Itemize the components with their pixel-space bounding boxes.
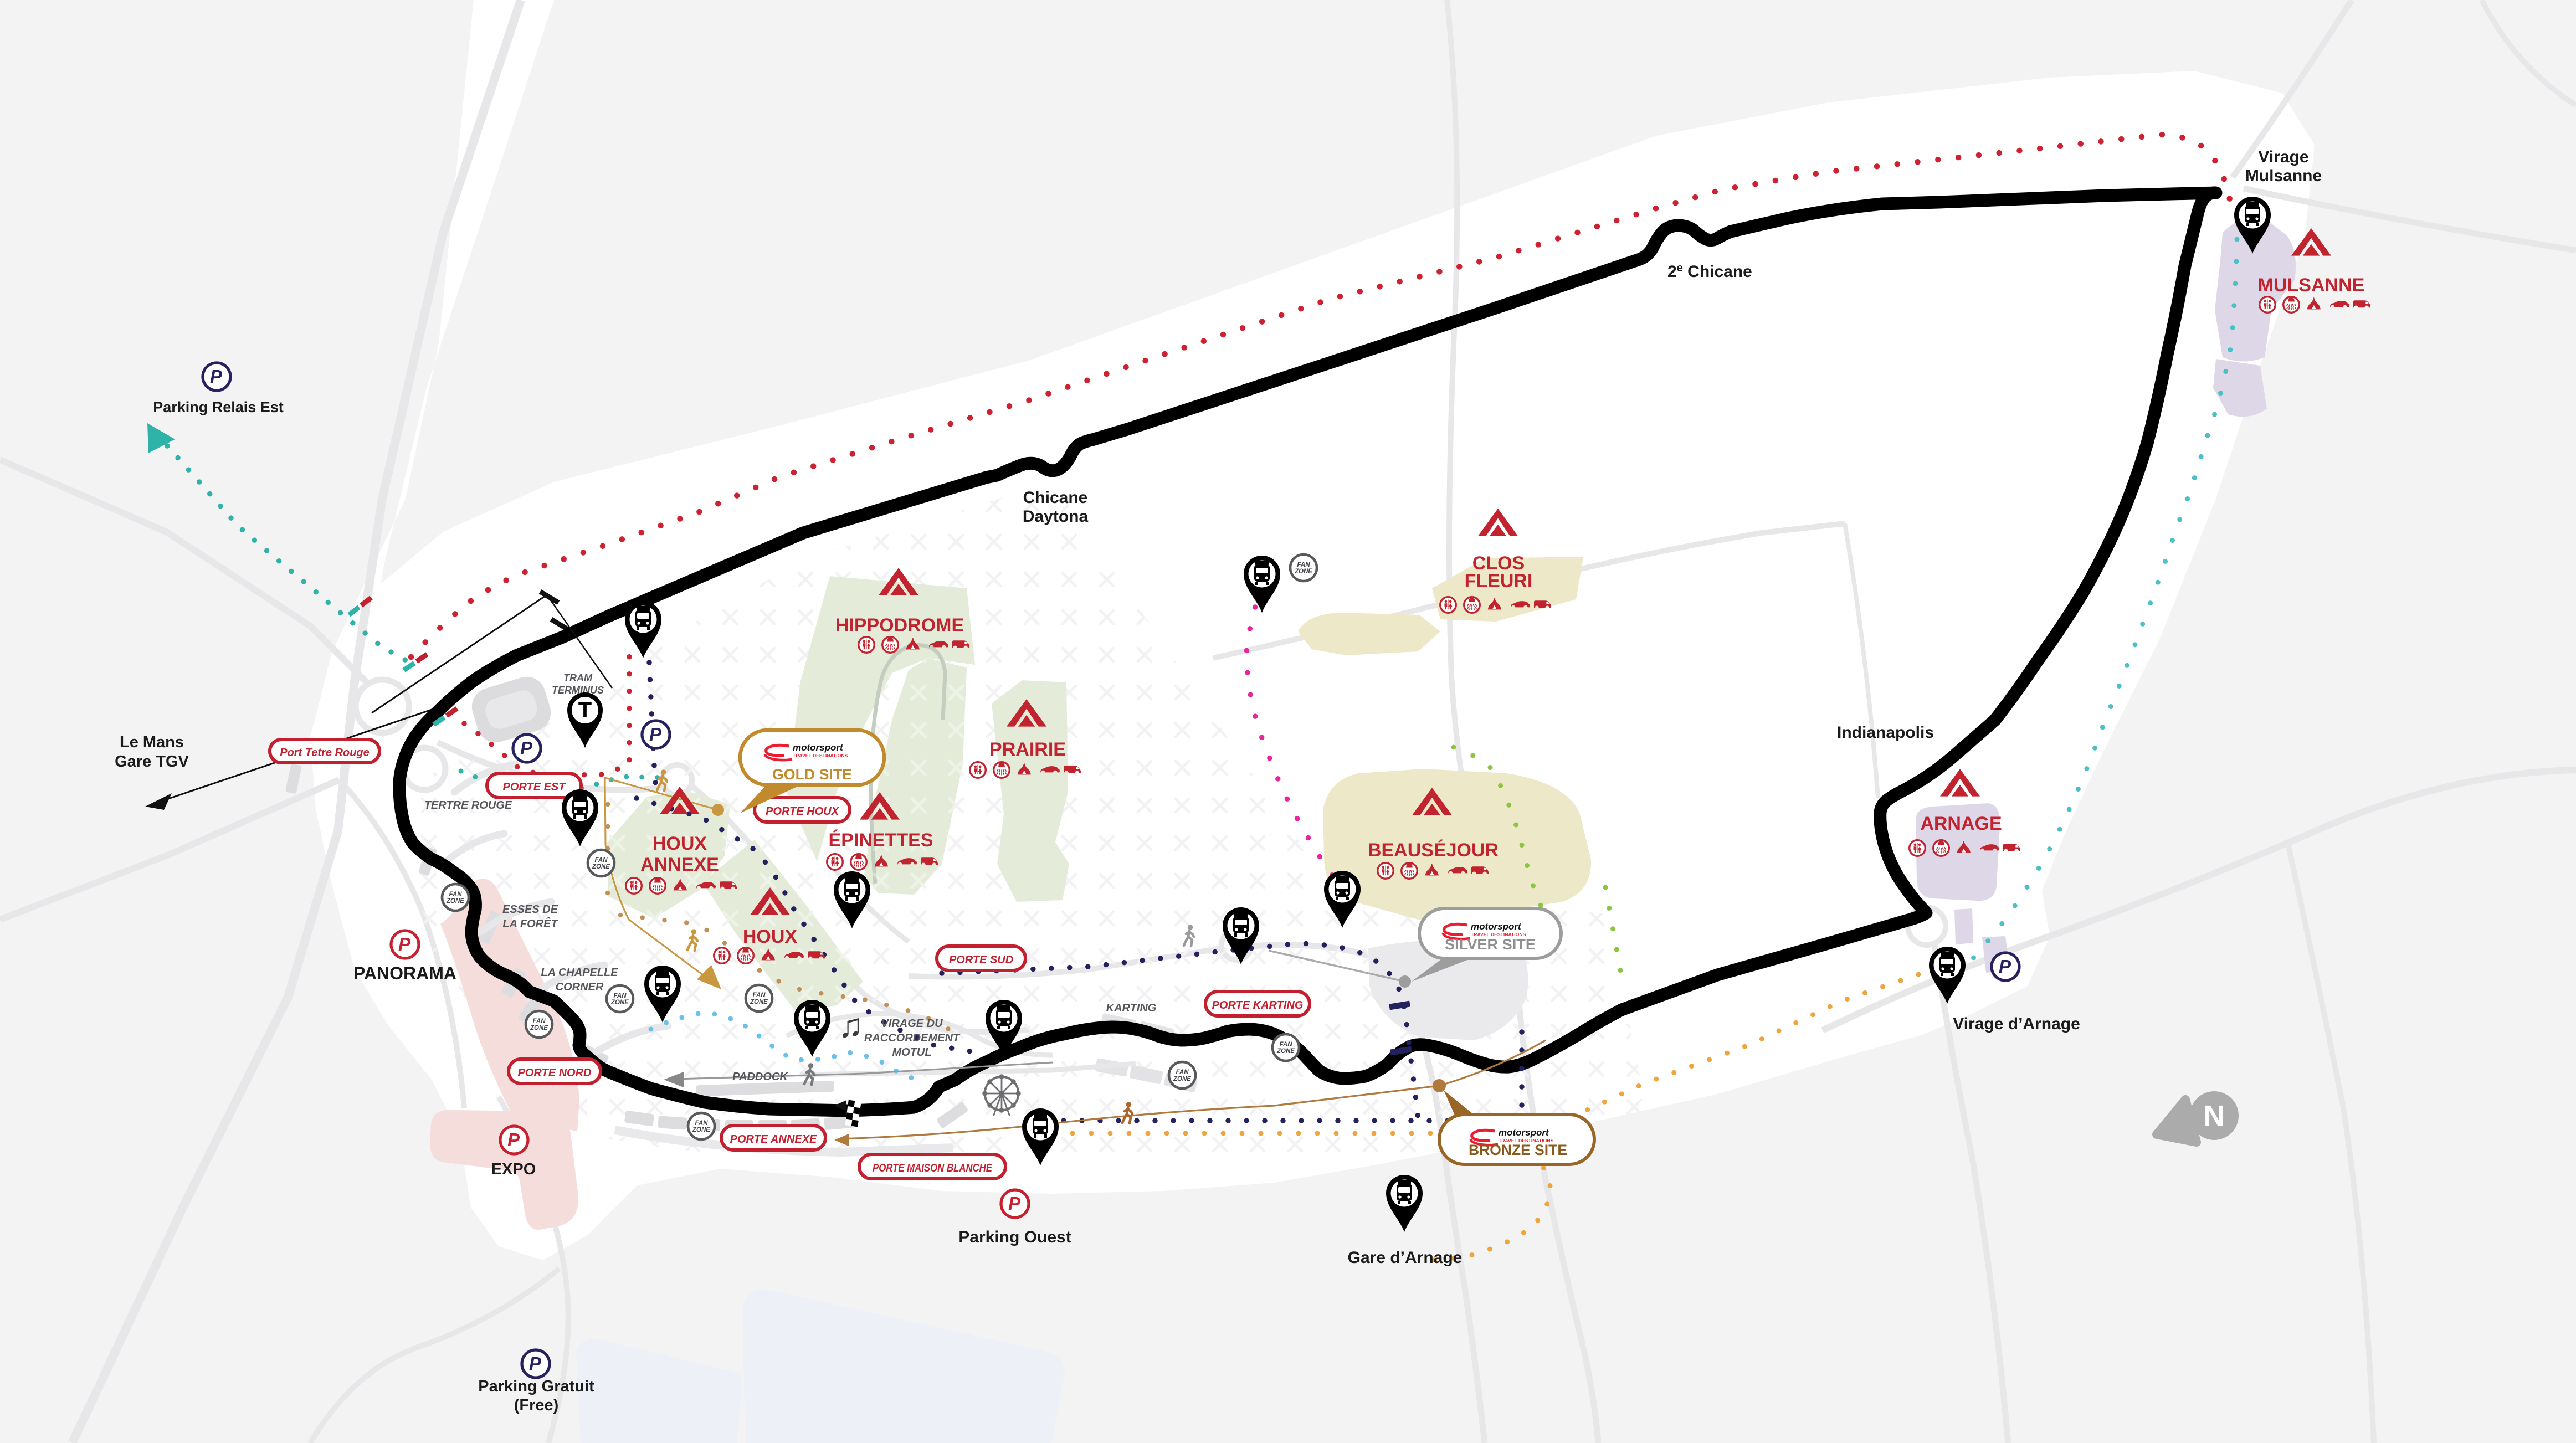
svg-text:Virage d’Arnage: Virage d’Arnage [1953,1015,2080,1033]
svg-text:LA CHAPELLE: LA CHAPELLE [541,967,618,979]
svg-text:PORTE MAISON BLANCHE: PORTE MAISON BLANCHE [873,1162,993,1174]
svg-text:VIRAGE DU: VIRAGE DU [881,1018,943,1030]
svg-text:RACCORDEMENT: RACCORDEMENT [864,1032,961,1044]
svg-text:LA FORÊT: LA FORÊT [502,917,558,930]
svg-text:PORTE HOUX: PORTE HOUX [766,805,840,818]
svg-text:BEAUSÉJOUR: BEAUSÉJOUR [1368,840,1499,861]
svg-text:HOUX: HOUX [653,833,707,854]
svg-text:♫: ♫ [838,1007,863,1044]
svg-text:Mulsanne: Mulsanne [2245,167,2322,185]
svg-text:PORTE KARTING: PORTE KARTING [1212,999,1304,1011]
svg-text:Daytona: Daytona [1023,507,1089,526]
svg-text:Parking Relais Est: Parking Relais Est [153,399,284,415]
svg-text:(Free): (Free) [514,1396,559,1414]
svg-text:PORTE NORD: PORTE NORD [518,1067,592,1079]
svg-text:FLEURI: FLEURI [1465,571,1533,592]
svg-text:HIPPODROME: HIPPODROME [835,615,964,636]
svg-text:BRONZE SITE: BRONZE SITE [1469,1142,1567,1158]
svg-text:ANNEXE: ANNEXE [640,854,719,875]
svg-text:ARNAGE: ARNAGE [1920,813,2002,834]
svg-text:ÉPINETTES: ÉPINETTES [829,830,933,851]
svg-text:PANORAMA: PANORAMA [353,963,456,983]
svg-text:MULSANNE: MULSANNE [2258,275,2365,296]
svg-text:GOLD SITE: GOLD SITE [772,766,852,783]
svg-text:Parking Ouest: Parking Ouest [958,1228,1071,1246]
svg-text:Gare d’Arnage: Gare d’Arnage [1348,1249,1463,1267]
svg-text:Chicane: Chicane [1023,489,1088,507]
svg-text:PADDOCK: PADDOCK [732,1071,788,1083]
svg-text:ESSES DE: ESSES DE [502,903,558,916]
svg-text:Virage: Virage [2258,148,2308,166]
svg-text:KARTING: KARTING [1106,1002,1157,1014]
svg-text:HOUX: HOUX [743,926,798,947]
svg-text:Gare TGV: Gare TGV [115,753,189,771]
svg-text:TRAM: TRAM [563,672,593,684]
svg-text:PRAIRIE: PRAIRIE [989,739,1066,760]
svg-text:PORTE SUD: PORTE SUD [949,954,1013,966]
svg-text:PORTE EST: PORTE EST [503,781,567,793]
svg-text:MOTUL: MOTUL [892,1046,931,1059]
svg-text:Indianapolis: Indianapolis [1837,723,1934,742]
svg-text:EXPO: EXPO [491,1160,536,1178]
svg-text:Parking Gratuit: Parking Gratuit [478,1378,594,1395]
svg-text:SILVER SITE: SILVER SITE [1445,936,1536,953]
svg-text:PORTE ANNEXE: PORTE ANNEXE [730,1133,817,1146]
svg-text:Port Tetre Rouge: Port Tetre Rouge [280,747,370,759]
svg-text:TERTRE ROUGE: TERTRE ROUGE [424,799,512,812]
svg-text:CORNER: CORNER [556,981,604,993]
svg-text:Le Mans: Le Mans [120,733,184,751]
svg-text:N: N [2204,1100,2225,1133]
